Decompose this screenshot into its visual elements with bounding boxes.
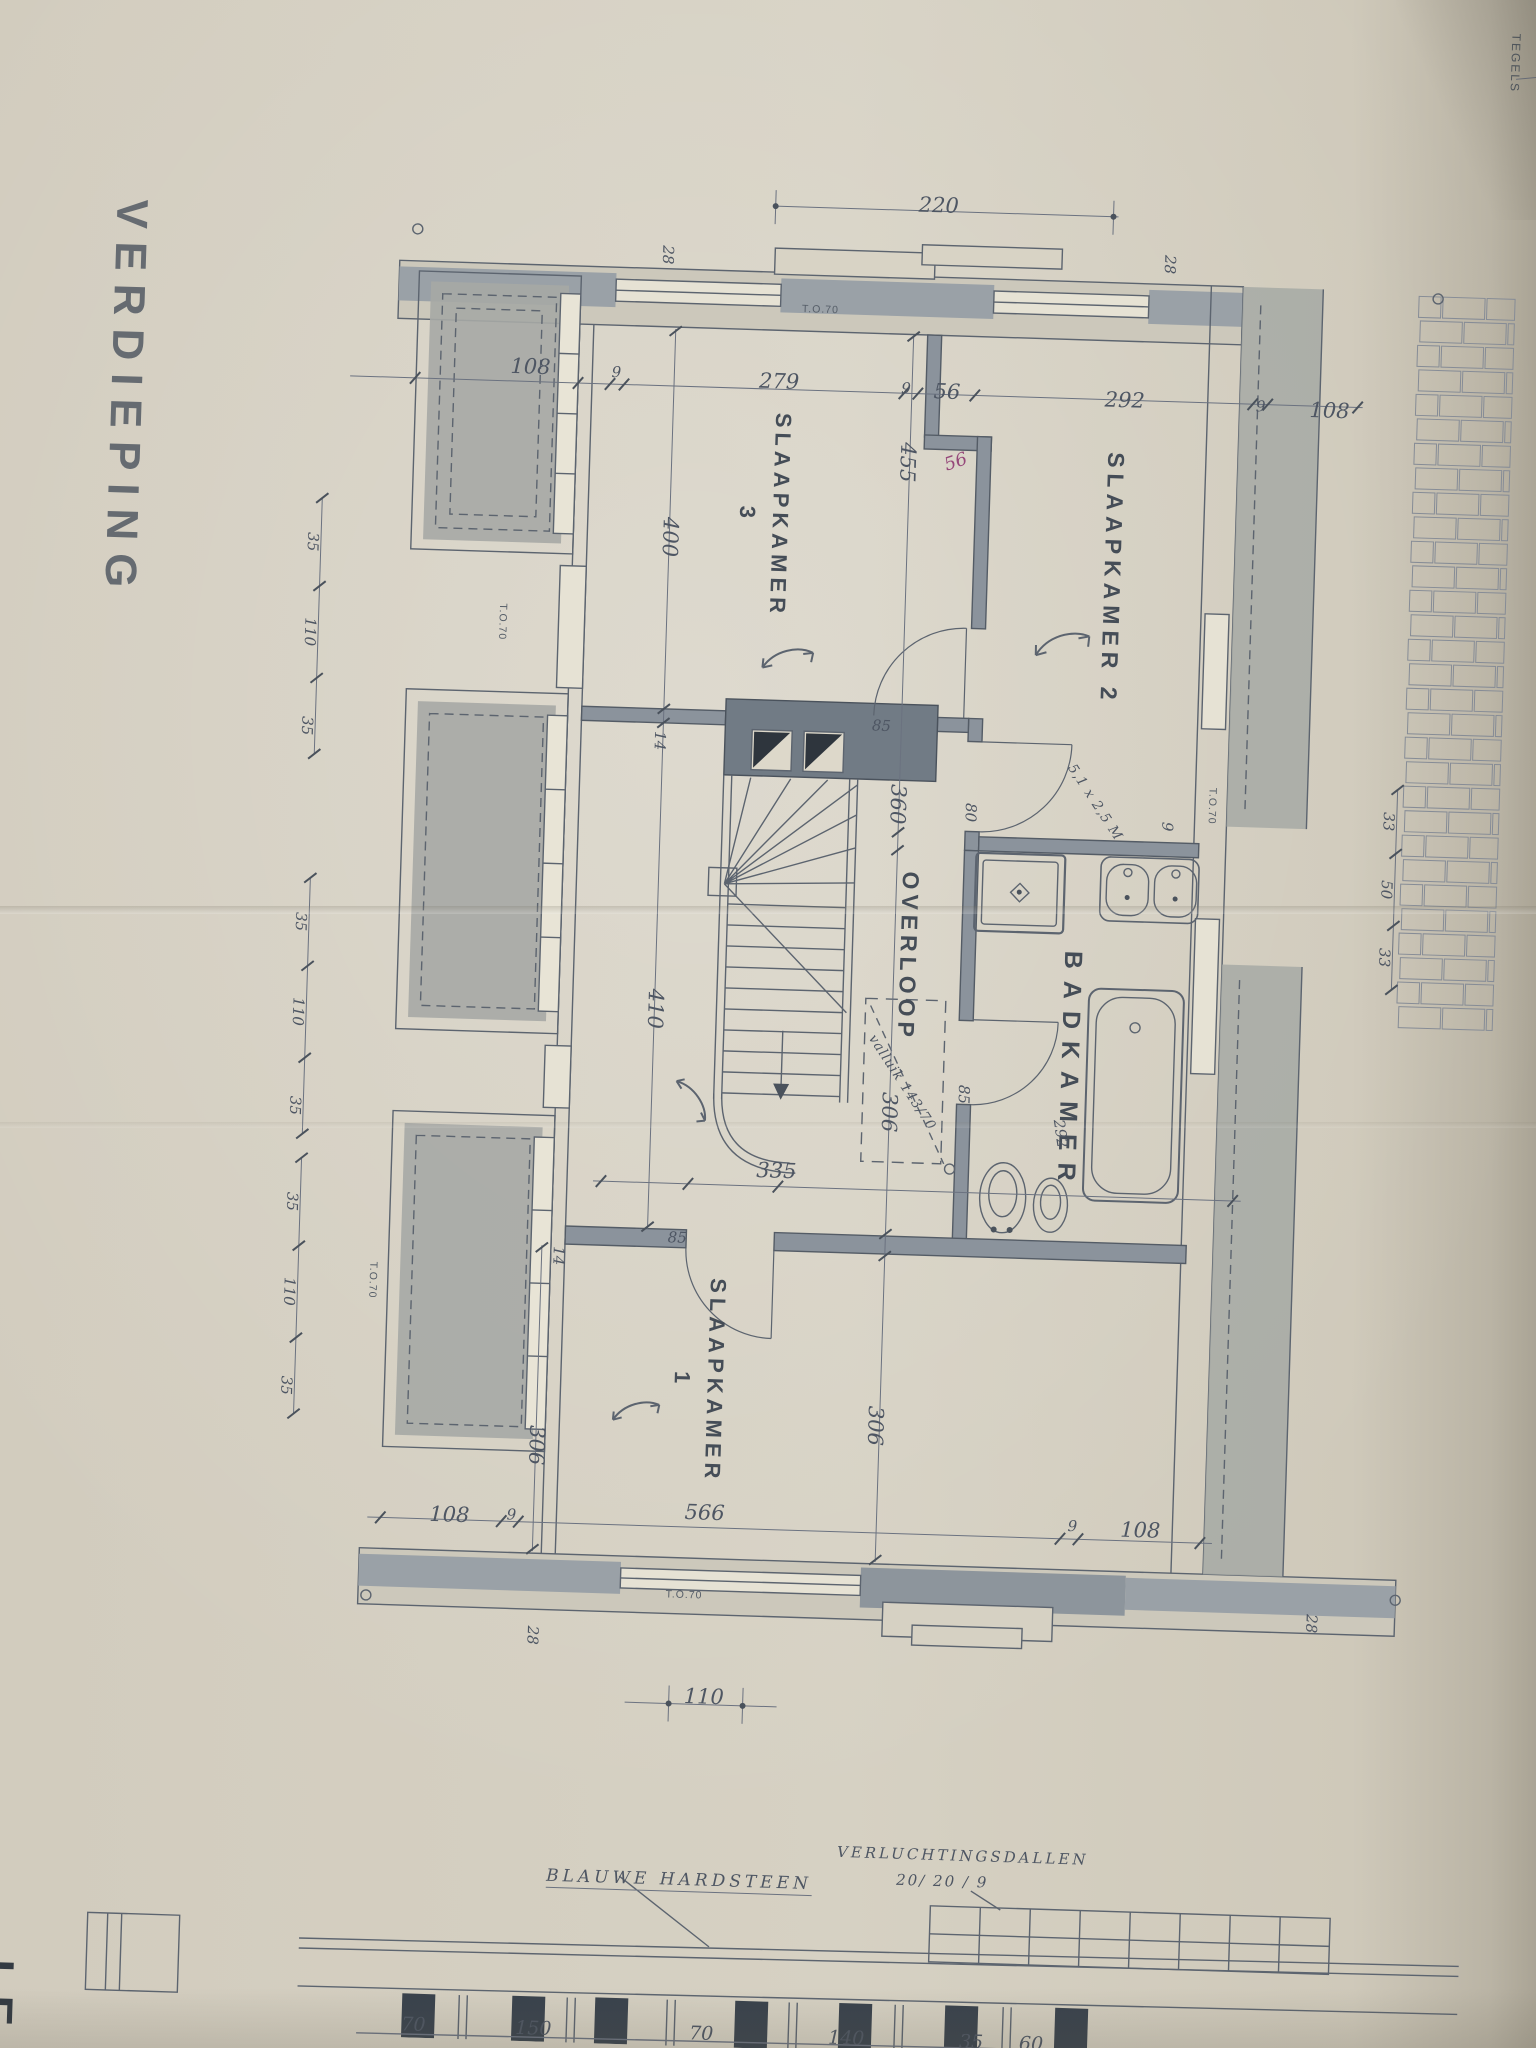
- dormer-3: [383, 1111, 555, 1452]
- footer-dim-label: 35: [959, 2031, 984, 2048]
- brick: [1399, 933, 1422, 955]
- dim-35: 35: [292, 912, 311, 932]
- paper-sheet: VERDIEPING TEGELS SLAAPKAMER 2SLAAPKAMER…: [0, 0, 1536, 2048]
- brick: [1492, 813, 1499, 834]
- footer-dim-label: 140: [828, 2027, 865, 2048]
- brick: [1476, 641, 1505, 663]
- brick: [1433, 591, 1476, 613]
- brick: [1412, 566, 1455, 588]
- dormer-2: [396, 689, 569, 1034]
- dim-56: 56: [933, 379, 960, 404]
- dim-279: 279: [759, 369, 800, 394]
- corner-note-tegels: TEGELS: [1508, 33, 1524, 93]
- brick: [1421, 983, 1464, 1005]
- brick: [1439, 395, 1482, 417]
- brick: [1505, 422, 1512, 443]
- dim-9: 9: [506, 1505, 516, 1523]
- brick: [1448, 812, 1491, 834]
- brick: [1485, 347, 1514, 369]
- brick: [1462, 371, 1505, 393]
- brick: [1479, 543, 1508, 565]
- brick: [1417, 345, 1440, 367]
- note-verluchtingsdallen-size: 20/ 20 / 9: [896, 1871, 989, 1892]
- dim-292: 292: [1104, 388, 1145, 413]
- dim-28: 28: [1161, 255, 1180, 275]
- brick: [1419, 296, 1442, 318]
- brick: [1451, 714, 1494, 736]
- dim-14: 14: [549, 1246, 568, 1266]
- brick: [1430, 689, 1473, 711]
- brick: [1411, 541, 1434, 563]
- room-label-slaapkamer-3: SLAAPKAMER3: [728, 411, 800, 618]
- dim-33: 33: [1375, 948, 1394, 968]
- bathtub: [1083, 988, 1185, 1203]
- dim-400: 400: [658, 517, 683, 558]
- brick: [1403, 860, 1446, 882]
- brick: [1438, 444, 1481, 466]
- dim-35: 35: [283, 1192, 302, 1212]
- legend-partial-text: LE: [0, 1958, 25, 2034]
- dim-9: 9: [1158, 822, 1176, 832]
- brick: [1402, 835, 1425, 857]
- chimney-block: [724, 699, 938, 782]
- dim-28: 28: [1302, 1614, 1321, 1634]
- brick: [1415, 468, 1458, 490]
- brick: [1502, 520, 1509, 541]
- door-85: 85: [872, 716, 892, 735]
- brick: [1406, 762, 1449, 784]
- brick: [1401, 909, 1444, 931]
- brick: [1412, 492, 1435, 514]
- brick: [1429, 738, 1472, 760]
- dim-335: 335: [756, 1158, 797, 1183]
- staircase: [699, 774, 857, 1174]
- dim-108: 108: [1120, 1518, 1161, 1543]
- brick: [1461, 420, 1504, 442]
- vent-arrow-icon: [1033, 630, 1091, 656]
- brick: [1453, 665, 1496, 687]
- brick: [1500, 569, 1507, 590]
- room-label-text: SLAAPKAMER: [761, 412, 800, 618]
- dim-455: 455: [895, 442, 920, 483]
- dim-110: 110: [683, 1684, 724, 1709]
- window-note: T.O.70: [1205, 787, 1218, 824]
- dim-220: 220: [918, 193, 959, 218]
- window-note: T.O.70: [665, 1588, 702, 1601]
- footer-dim-label: 150: [515, 2017, 552, 2040]
- brick: [1503, 471, 1510, 492]
- direction-arrow: [781, 1031, 783, 1086]
- brick: [1489, 911, 1496, 932]
- brick: [1458, 518, 1501, 540]
- brick: [1456, 567, 1499, 589]
- dim-110: 110: [301, 617, 320, 646]
- room-label-badkamer: BADKAMER: [1046, 950, 1091, 1193]
- brick: [1486, 1009, 1493, 1030]
- brick-hatch: [1396, 296, 1515, 1030]
- vent-arrow-icon: [611, 1400, 660, 1419]
- brick: [1407, 713, 1450, 735]
- brick: [1414, 443, 1437, 465]
- brick: [1470, 837, 1499, 859]
- room-label-text: OVERLOOP: [888, 871, 928, 1042]
- brick: [1442, 297, 1485, 319]
- dim-306: 306: [863, 1405, 888, 1446]
- brick: [1418, 370, 1461, 392]
- door-85: 85: [955, 1085, 974, 1105]
- room-label-text: SLAAPKAMER: [696, 1278, 735, 1484]
- door-badkamer: [971, 1020, 1059, 1108]
- brick: [1477, 592, 1506, 614]
- brick: [1459, 469, 1502, 491]
- dim-566: 566: [684, 1500, 725, 1525]
- room-label-overloop: OVERLOOP: [888, 871, 928, 1042]
- dim-410: 410: [643, 988, 668, 1029]
- brick: [1464, 322, 1507, 344]
- brick: [1435, 542, 1478, 564]
- dim-33: 33: [1379, 812, 1398, 832]
- brick: [1398, 1007, 1441, 1029]
- floorplan-drawing: [0, 0, 1536, 2048]
- dim-108: 108: [429, 1502, 470, 1527]
- dim-306: 306: [524, 1425, 549, 1466]
- dim-306: 306: [877, 1092, 902, 1133]
- dim-292-hand: 292: [1050, 1118, 1072, 1149]
- dormer-1: [411, 271, 582, 554]
- brick: [1422, 934, 1465, 956]
- brick: [1409, 590, 1432, 612]
- dim-9: 9: [901, 379, 911, 397]
- vent-arrow-icon: [761, 648, 814, 668]
- brick: [1411, 615, 1454, 637]
- window-note: T.O.70: [802, 303, 839, 316]
- brick: [1497, 667, 1504, 688]
- brick: [1465, 984, 1494, 1006]
- brick: [1408, 639, 1431, 661]
- vent-arrow-icon: [677, 1075, 710, 1124]
- brick: [1498, 618, 1505, 639]
- winder-treads: [720, 777, 857, 1013]
- brick: [1436, 493, 1479, 515]
- room-label-slaapkamer-1: SLAAPKAMER1: [663, 1277, 735, 1484]
- arrow-head: [773, 1083, 789, 1099]
- toilet: [979, 1162, 1027, 1233]
- brick: [1474, 690, 1503, 712]
- brick: [1404, 811, 1447, 833]
- brick: [1473, 739, 1502, 761]
- brick: [1442, 1008, 1485, 1030]
- dim-9: 9: [611, 363, 621, 381]
- brick: [1488, 960, 1495, 981]
- brick: [1400, 884, 1423, 906]
- brick: [1400, 958, 1443, 980]
- footer-dim-label: 70: [401, 2013, 426, 2036]
- brick: [1397, 982, 1420, 1004]
- brick: [1450, 763, 1493, 785]
- brick: [1483, 396, 1512, 418]
- dim-35: 35: [298, 716, 317, 736]
- brick: [1424, 885, 1467, 907]
- brick: [1491, 862, 1498, 883]
- dim-110: 110: [280, 1277, 299, 1306]
- brick: [1403, 786, 1426, 808]
- brick: [1466, 935, 1495, 957]
- brick: [1495, 715, 1502, 736]
- photographed-floorplan: VERDIEPING TEGELS SLAAPKAMER 2SLAAPKAMER…: [0, 0, 1536, 2048]
- brick: [1444, 959, 1487, 981]
- brick: [1508, 324, 1515, 345]
- brick: [1506, 373, 1513, 394]
- handrail-curve: [720, 1094, 792, 1163]
- dim-35: 35: [286, 1096, 305, 1116]
- dim-110: 110: [289, 997, 308, 1026]
- dim-28: 28: [523, 1625, 542, 1645]
- brick: [1409, 664, 1452, 686]
- window-note: T.O.70: [366, 1261, 379, 1298]
- window-note: T.O.70: [496, 603, 509, 640]
- brick: [1415, 394, 1438, 416]
- dim-9: 9: [1067, 1517, 1077, 1535]
- dim-360: 360: [885, 784, 910, 825]
- dim-35: 35: [304, 532, 323, 552]
- brick: [1454, 616, 1497, 638]
- brick: [1494, 764, 1501, 785]
- right-roof-zone: [1203, 287, 1323, 1577]
- brick: [1405, 737, 1428, 759]
- brick: [1406, 688, 1429, 710]
- brick: [1426, 836, 1469, 858]
- footer-dim-label: 70: [689, 2022, 714, 2045]
- brick: [1480, 494, 1509, 516]
- shower: [974, 853, 1065, 934]
- brick: [1468, 886, 1497, 908]
- brick: [1441, 346, 1484, 368]
- dim-28: 28: [659, 245, 678, 265]
- brick: [1427, 787, 1470, 809]
- brick: [1432, 640, 1475, 662]
- brick: [1417, 419, 1460, 441]
- brick: [1445, 910, 1488, 932]
- brick: [1482, 445, 1511, 467]
- dim-108: 108: [1309, 398, 1350, 423]
- brick: [1420, 321, 1463, 343]
- dormer-blocks: [383, 271, 582, 1452]
- dim-35: 35: [277, 1376, 296, 1396]
- dim-108: 108: [510, 354, 551, 379]
- dim-9: 9: [1256, 397, 1266, 415]
- dim-50: 50: [1377, 880, 1396, 900]
- door-80: 80: [961, 803, 980, 823]
- brick: [1447, 861, 1490, 883]
- brick: [1414, 517, 1457, 539]
- straight-treads: [722, 904, 846, 1097]
- door-85: 85: [667, 1228, 687, 1247]
- brick: [1486, 299, 1515, 321]
- room-label-text: BADKAMER: [1046, 950, 1091, 1193]
- double-sink-vanity: [1099, 857, 1199, 924]
- brick: [1471, 788, 1500, 810]
- dim-14: 14: [651, 731, 670, 751]
- footer-dim-label: 60: [1019, 2033, 1044, 2048]
- door-sk2: [979, 742, 1072, 835]
